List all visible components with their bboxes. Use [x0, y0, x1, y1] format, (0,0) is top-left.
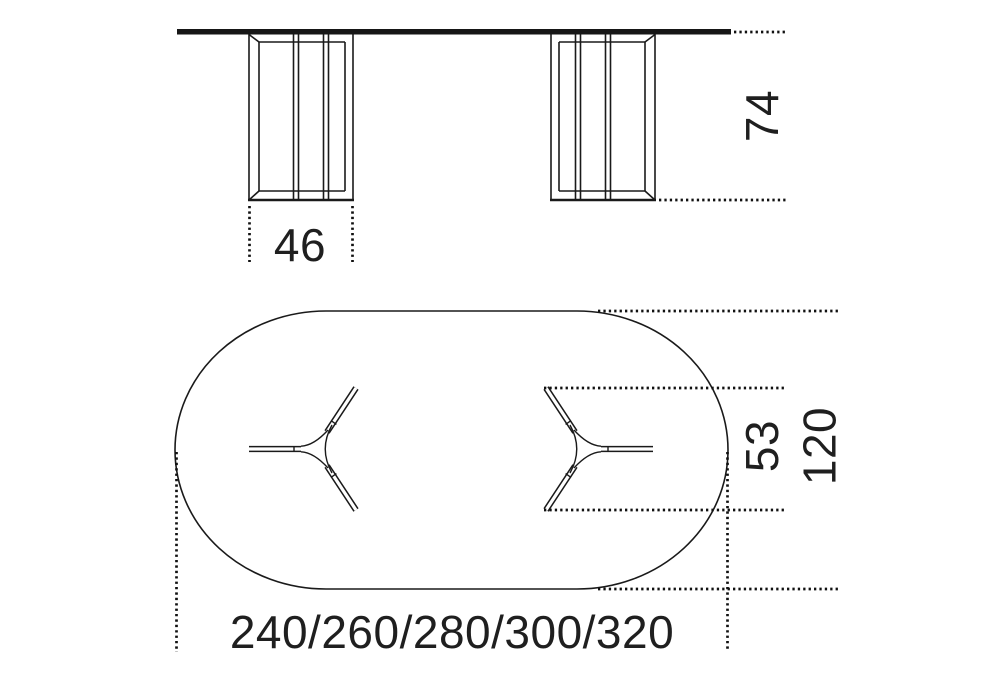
top-plan-view [175, 311, 728, 589]
top-depth-label: 120 [794, 407, 846, 485]
technical-drawing-canvas: 46 74 53 120 240/260/280/300/320 [0, 0, 1000, 700]
top-lengths-label: 240/260/280/300/320 [230, 606, 674, 658]
elevation-left-pedestal [248, 35, 354, 201]
tabletop-slab [177, 29, 731, 35]
plan-left-pedestal [249, 388, 356, 510]
pedestal-width-label: 46 [274, 219, 326, 271]
elevation-right-pedestal [550, 35, 656, 201]
pedestal-depth-label: 53 [736, 420, 788, 472]
furniture-dimension-drawing: 46 74 53 120 240/260/280/300/320 [0, 0, 1000, 700]
front-elevation-view [177, 29, 731, 200]
plan-right-pedestal [546, 388, 653, 510]
table-height-label: 74 [736, 90, 788, 142]
